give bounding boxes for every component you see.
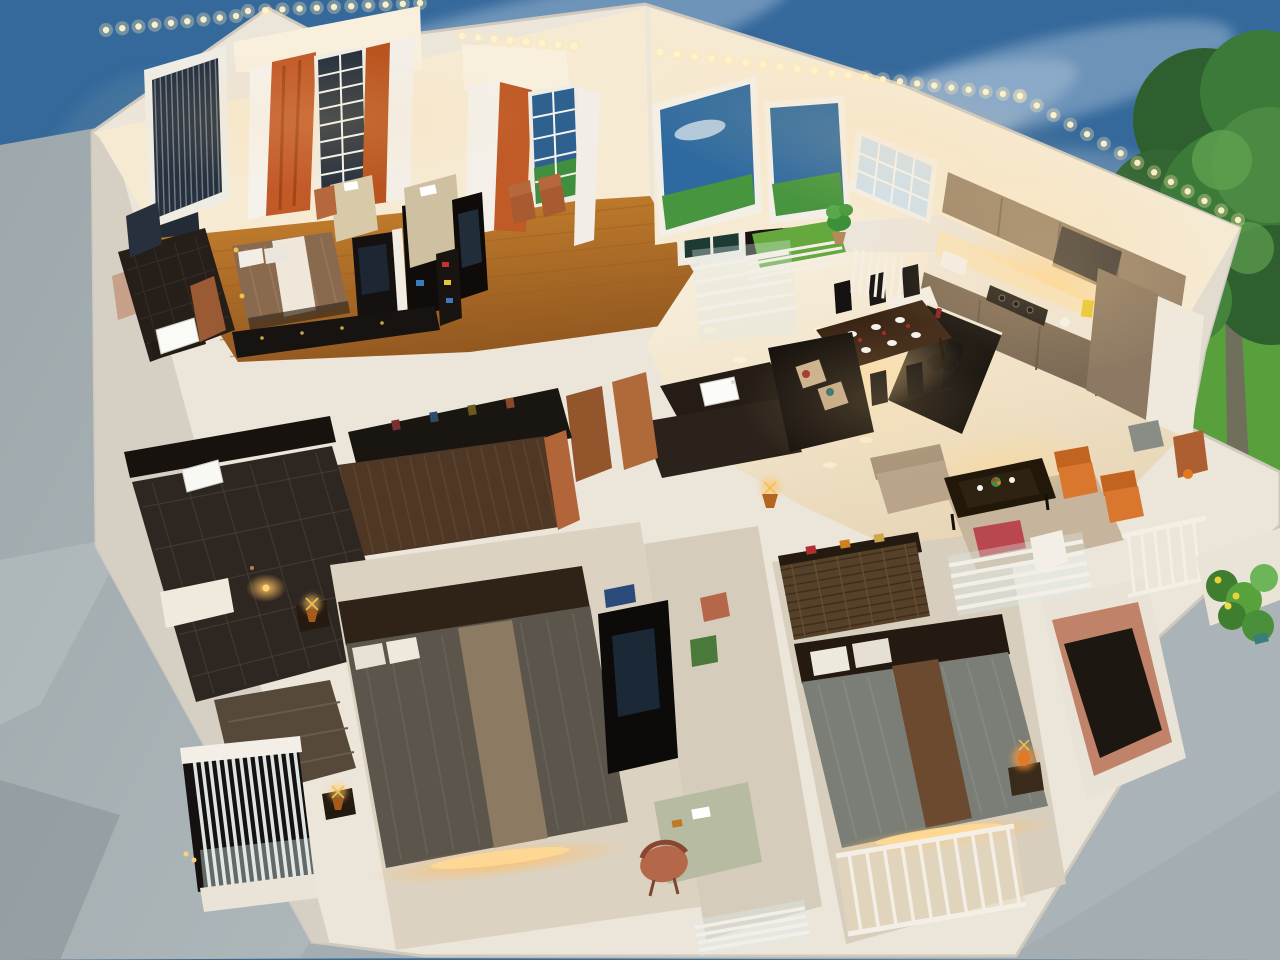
shelf-book [446,298,453,303]
console-knob [380,321,384,325]
tv-screen [458,209,482,268]
tv-screen [612,628,660,717]
plant [1218,602,1246,630]
yellow-flower [1233,593,1240,600]
terracotta-chair [314,185,337,220]
hanging-garment [467,404,477,415]
led-dot [103,27,109,33]
led-dot [365,2,371,8]
gold-cushion [240,294,245,299]
photo-of-apartment-scale-model: Miniature architectural scale model of a… [0,0,1280,960]
wall-glow [100,50,540,190]
step-light [192,858,197,863]
led-dot [1184,188,1190,194]
led-dot [348,3,354,9]
console-knob [300,331,304,335]
led-dot [184,18,190,24]
led-dot [1218,207,1224,213]
led-dot [331,4,337,10]
led-dot [539,40,545,46]
led-dot [233,13,239,19]
table-leg [1046,494,1048,510]
orange-toy [1183,469,1193,479]
led-dot [555,41,561,47]
accent-light [250,566,254,570]
shelf-book [416,280,424,286]
console-knob [340,326,344,330]
staircase [180,736,318,912]
wall-frame-green [690,635,718,667]
table-leg [952,514,954,530]
faucet [731,380,735,384]
hanging-garment [429,411,439,422]
led-dot [245,8,251,14]
shelf-item [873,533,884,543]
led-dot [217,15,223,21]
led-dot [152,22,158,28]
shelf-item [805,545,816,555]
scene-canvas [0,0,1280,960]
led-dot [1017,93,1023,99]
shelf-book [442,262,449,267]
led-dot [523,39,529,45]
led-dot [382,1,388,7]
led-dot [296,5,302,11]
accent-light [263,585,270,592]
ambient-glow [740,320,1020,480]
led-dot [417,0,423,6]
plant [1250,564,1278,592]
led-dot [135,23,141,29]
shelf-book [444,280,451,285]
led-dot [262,7,268,13]
console-knob [260,336,264,340]
tv-screen [358,244,390,295]
led-dot [459,33,465,39]
led-dot [1201,198,1207,204]
led-dot [491,36,497,42]
floor-reflection [733,357,747,363]
hanging-garment [505,397,515,408]
led-dot [400,1,406,7]
led-dot [119,25,125,31]
led-dot [279,6,285,12]
hanging-garment [391,419,401,430]
shelf-item [839,539,850,549]
led-dot [200,16,206,22]
fruit [992,478,996,482]
led-dot [314,5,320,11]
led-dot [571,43,577,49]
yellow-flower [1225,603,1232,610]
lamp-body [1018,750,1030,766]
led-dot [168,20,174,26]
fruit [997,481,1001,485]
led-dot [475,34,481,40]
led-dot [507,37,513,43]
gold-cushion [234,248,239,253]
step-light [184,852,189,857]
led-dot [1235,217,1241,223]
tree-foliage-light [1192,130,1252,190]
cup [977,485,983,491]
cup [1009,477,1015,483]
bed-3 [338,566,631,894]
yellow-flower [1215,577,1222,584]
master-bed [232,232,350,330]
led-dot [1034,102,1040,108]
bookshelf [436,248,462,326]
dining-chair [834,280,852,314]
